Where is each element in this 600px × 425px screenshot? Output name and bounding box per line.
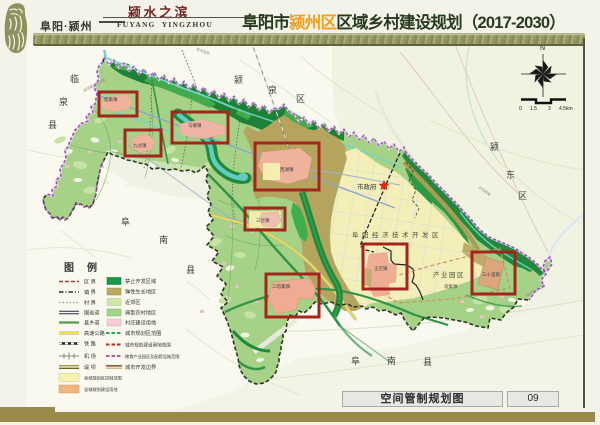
svg-text:县城规划区控制范围: 县城规划区控制范围 (84, 374, 122, 381)
svg-text:村庄建设用地: 村庄建设用地 (125, 318, 156, 326)
svg-text:九龙镇: 九龙镇 (133, 142, 147, 149)
svg-text:三塔集镇: 三塔集镇 (272, 283, 290, 290)
svg-text:东: 东 (506, 169, 515, 180)
svg-text:弹性生长地区: 弹性生长地区 (125, 287, 156, 295)
svg-text:县: 县 (423, 357, 432, 367)
svg-text:区 界: 区 界 (84, 278, 96, 285)
svg-text:机 场: 机 场 (84, 352, 96, 360)
svg-text:3: 3 (548, 106, 551, 112)
svg-text:三合镇: 三合镇 (256, 217, 270, 224)
svg-text:程集镇: 程集镇 (104, 96, 118, 103)
svg-text:县城规划建设用地: 县城规划建设用地 (84, 386, 118, 393)
svg-text:市政府: 市政府 (357, 182, 377, 191)
svg-text:王店镇: 王店镇 (374, 265, 388, 272)
svg-text:南: 南 (387, 355, 396, 366)
svg-text:产业园区: 产业园区 (433, 270, 465, 279)
svg-text:禁止开发区域: 禁止开发区域 (125, 277, 156, 285)
svg-text:国省道: 国省道 (84, 308, 100, 316)
svg-text:铁 路: 铁 路 (84, 339, 97, 347)
svg-text:城市规划区范围: 城市规划区范围 (125, 329, 161, 337)
svg-text:例: 例 (87, 261, 97, 274)
svg-text:县: 县 (186, 265, 195, 275)
svg-text:西湖镇: 西湖镇 (280, 166, 294, 173)
svg-text:颍: 颍 (234, 74, 243, 85)
svg-text:0: 0 (519, 106, 522, 112)
svg-text:马寨镇: 马寨镇 (188, 122, 202, 129)
svg-text:图: 图 (64, 262, 74, 274)
svg-text:区: 区 (296, 94, 305, 104)
svg-text:阜: 阜 (351, 355, 360, 366)
svg-text:N: N (540, 45, 545, 52)
svg-text:泉: 泉 (59, 96, 68, 107)
svg-text:粮食产业园区及配套设施范围: 粮食产业园区及配套设施范围 (125, 353, 179, 360)
svg-text:高速公路: 高速公路 (84, 329, 106, 337)
svg-text:县: 县 (48, 120, 57, 130)
svg-text:近郊区: 近郊区 (125, 298, 141, 306)
svg-text:临: 临 (70, 73, 79, 84)
svg-text:典型农村地区: 典型农村地区 (125, 308, 156, 316)
svg-text:袁集镇: 袁集镇 (444, 283, 458, 290)
svg-text:颍: 颍 (490, 141, 499, 152)
svg-text:城市规划建设用地范围: 城市规划建设用地范围 (125, 341, 171, 348)
svg-text:堤 坝: 堤 坝 (84, 363, 96, 371)
svg-text:4.5km: 4.5km (559, 106, 573, 112)
svg-text:三十里铺: 三十里铺 (482, 271, 500, 278)
svg-text:村 界: 村 界 (84, 298, 96, 306)
svg-text:1.5: 1.5 (530, 106, 537, 112)
svg-text:泉: 泉 (268, 84, 277, 95)
svg-text:阜阳经济技术开发区: 阜阳经济技术开发区 (352, 230, 442, 239)
svg-text:镇 界: 镇 界 (84, 288, 96, 296)
svg-text:区: 区 (518, 191, 527, 201)
svg-text:阜: 阜 (121, 216, 130, 227)
svg-text:县乡道: 县乡道 (84, 318, 100, 326)
svg-text:南: 南 (159, 234, 168, 245)
svg-text:城市开发边界: 城市开发边界 (125, 363, 156, 371)
